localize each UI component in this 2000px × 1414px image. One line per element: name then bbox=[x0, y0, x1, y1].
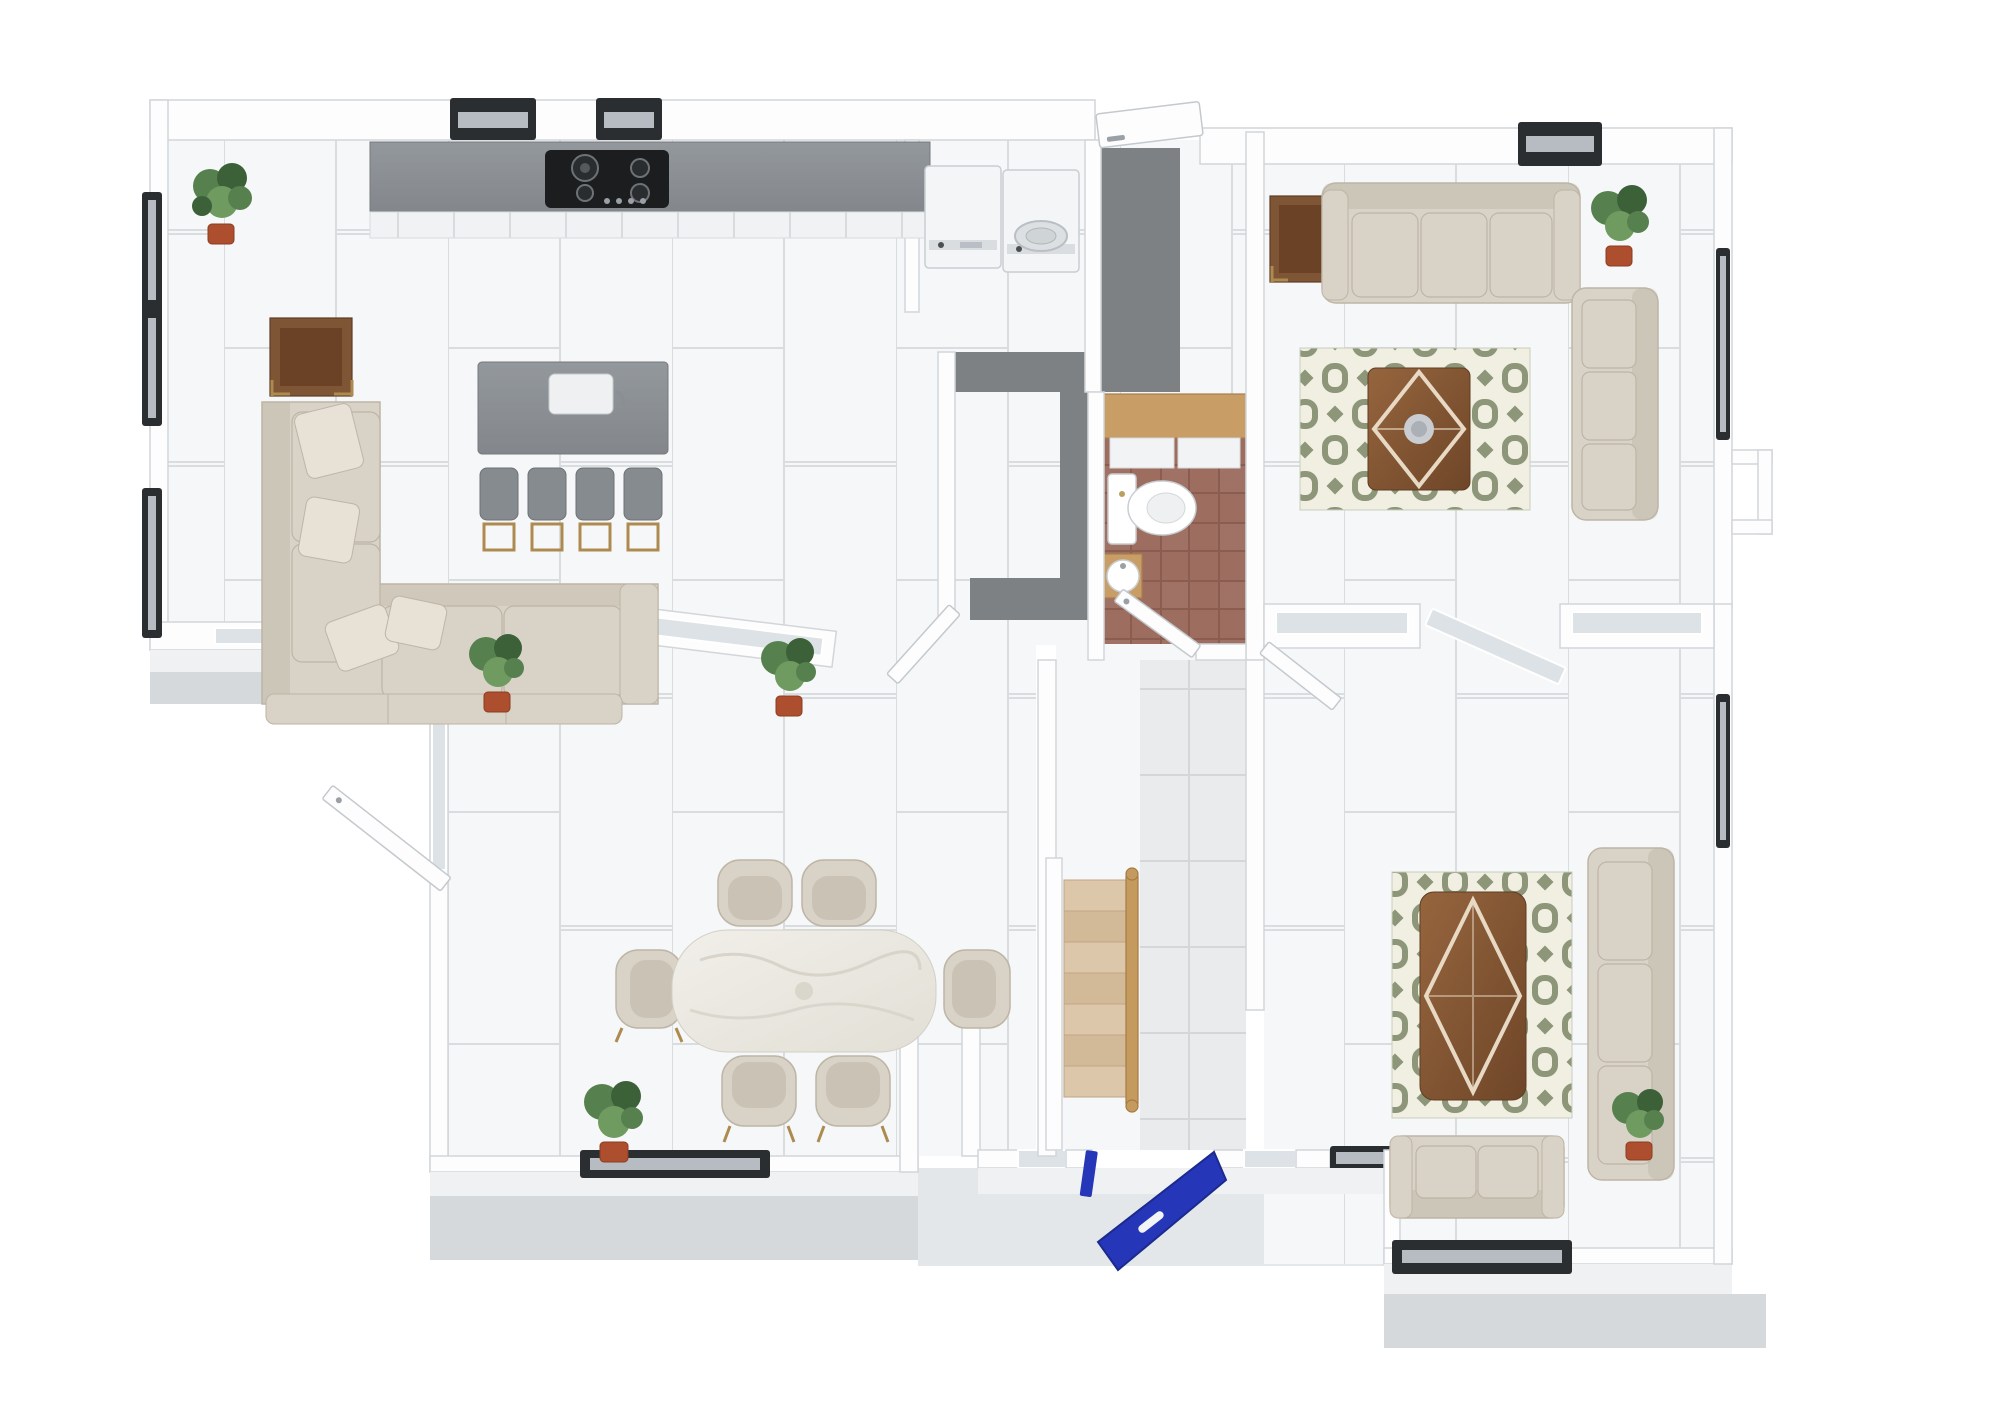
entry-south-window-glass bbox=[1336, 1152, 1388, 1164]
dining-chair bbox=[718, 860, 792, 926]
family-room bbox=[1390, 848, 1674, 1218]
gas-hob bbox=[545, 150, 669, 208]
wall-corridor-east bbox=[1246, 660, 1264, 1010]
kitchen-island bbox=[478, 362, 668, 454]
vanity-cabinet-door bbox=[1178, 438, 1240, 468]
wall-entry-south-1 bbox=[978, 1150, 1018, 1168]
porch-dining bbox=[430, 1196, 918, 1260]
sofa-back-left bbox=[262, 402, 290, 704]
wall-bathroom-west bbox=[1088, 392, 1104, 660]
sofa-bench-front bbox=[266, 694, 622, 724]
floor-plan-svg bbox=[0, 0, 2000, 1414]
balustrade-living-family-left bbox=[1264, 604, 1420, 648]
kitchen-window-2 bbox=[596, 98, 662, 140]
coffee-table bbox=[1420, 892, 1526, 1100]
sofa-arm-right bbox=[620, 584, 658, 704]
washing-machine bbox=[925, 166, 1001, 268]
wall-north-right bbox=[1200, 128, 1732, 164]
sofa-top bbox=[1322, 183, 1580, 303]
bathroom-vanity bbox=[1104, 394, 1246, 438]
sofa-bottom bbox=[1390, 1136, 1564, 1218]
side-table bbox=[270, 318, 352, 396]
west-window-upper bbox=[142, 192, 162, 426]
stair-treads bbox=[1064, 880, 1126, 1097]
dining-chair bbox=[944, 950, 1010, 1028]
floor-plan-stage bbox=[0, 0, 2000, 1414]
island-sink bbox=[549, 374, 613, 414]
wall-entry-west bbox=[962, 1016, 980, 1156]
west-window-lower bbox=[142, 488, 162, 638]
entry-sidelight-right bbox=[1244, 1150, 1296, 1168]
wall-east-bay bbox=[1732, 450, 1772, 534]
stair-handrail bbox=[1126, 868, 1138, 1112]
wall-living-west bbox=[1246, 132, 1264, 660]
vanity-cabinet-door bbox=[1110, 438, 1174, 468]
family-east-window bbox=[1716, 694, 1730, 848]
sofa-right bbox=[1572, 288, 1658, 520]
porch-family bbox=[1384, 1294, 1766, 1348]
coffee-table bbox=[1368, 368, 1470, 490]
wall-hall-left bbox=[1085, 140, 1101, 392]
carpet-strip-bath-bottom bbox=[970, 578, 1104, 620]
dining-table bbox=[672, 930, 936, 1052]
kitchen-window-1 bbox=[450, 98, 536, 140]
living-east-window bbox=[1716, 248, 1730, 440]
wall-entry-south-4 bbox=[1296, 1150, 1330, 1168]
floor-entry-bigtiles bbox=[1140, 660, 1246, 1150]
wall-bathroom-south bbox=[1196, 644, 1246, 660]
dining-chair bbox=[802, 860, 876, 926]
balustrade-living-family-right bbox=[1560, 604, 1714, 648]
stair-wall bbox=[1046, 858, 1062, 1150]
family-south-window bbox=[1392, 1240, 1572, 1274]
wall-hall-west bbox=[938, 352, 955, 620]
tumble-dryer bbox=[1003, 170, 1079, 272]
carpet-strip-horizontal bbox=[955, 352, 1180, 392]
living-north-window bbox=[1518, 122, 1602, 166]
